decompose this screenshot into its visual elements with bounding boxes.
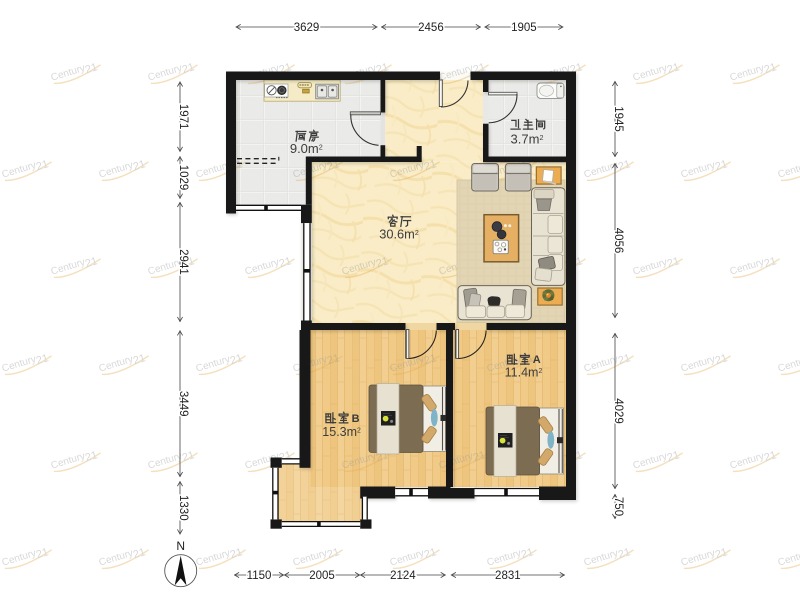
svg-text:1330: 1330	[177, 495, 189, 521]
svg-text:2941: 2941	[177, 249, 189, 275]
svg-text:11.4m2: 11.4m2	[505, 366, 543, 380]
svg-text:4056: 4056	[612, 228, 624, 254]
svg-text:2124: 2124	[390, 570, 416, 582]
svg-text:2005: 2005	[309, 570, 335, 582]
svg-text:2831: 2831	[495, 570, 521, 582]
svg-text:N: N	[176, 539, 185, 553]
svg-text:1150: 1150	[247, 570, 272, 582]
svg-text:3449: 3449	[177, 391, 189, 417]
svg-text:4029: 4029	[612, 398, 624, 424]
svg-text:30.6m2: 30.6m2	[379, 227, 419, 242]
svg-text:15.3m2: 15.3m2	[322, 425, 361, 439]
svg-text:B: B	[352, 413, 360, 425]
svg-text:1945: 1945	[612, 106, 624, 132]
svg-text:750: 750	[612, 497, 624, 516]
svg-text:1029: 1029	[177, 165, 189, 191]
svg-text:1905: 1905	[511, 22, 537, 34]
svg-text:9.0m2: 9.0m2	[290, 141, 323, 156]
svg-text:1971: 1971	[177, 104, 189, 130]
svg-text:3629: 3629	[294, 22, 320, 34]
svg-text:3.7m2: 3.7m2	[511, 132, 544, 147]
svg-text:A: A	[533, 354, 541, 366]
svg-text:2456: 2456	[418, 22, 444, 34]
